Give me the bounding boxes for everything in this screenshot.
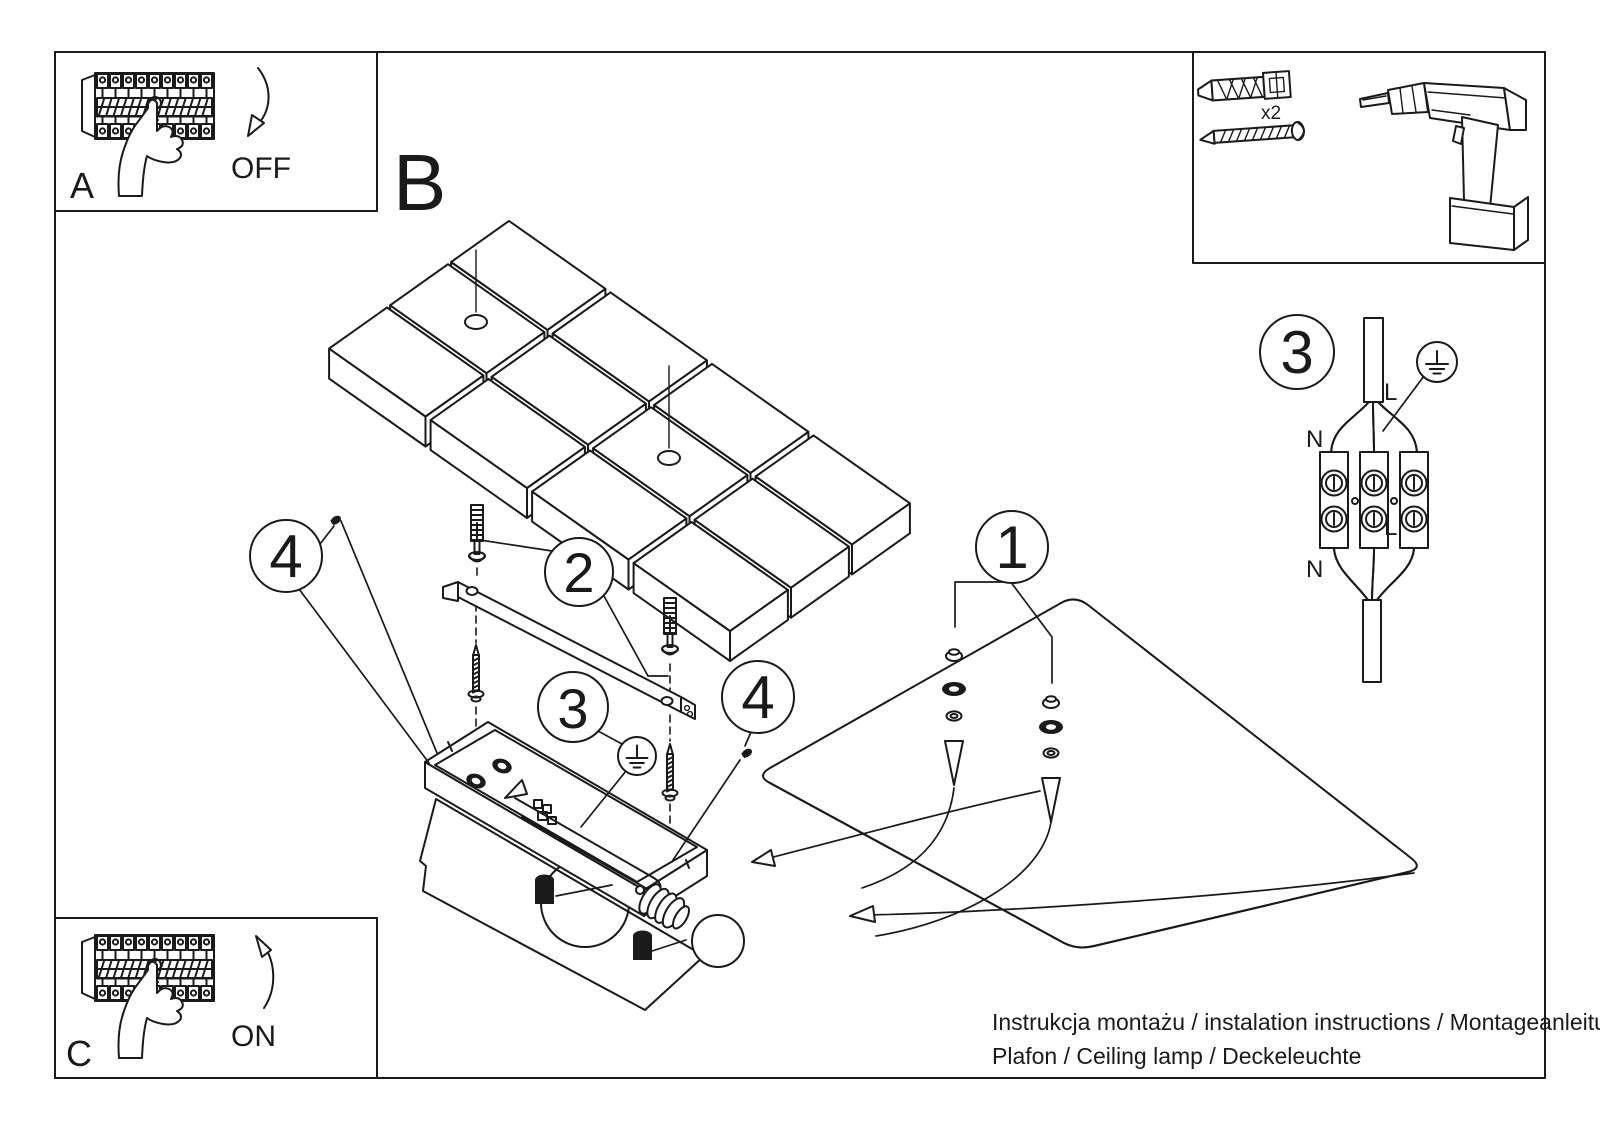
panel-to-lamp-arrow-2 — [868, 873, 1414, 915]
footer-line1: Instrukcja montażu / instalation instruc… — [992, 1009, 1600, 1035]
ground-symbol — [618, 737, 656, 775]
step-1-label: 1 — [995, 514, 1028, 581]
label-on: ON — [231, 1020, 276, 1053]
guide-arrows — [752, 788, 1414, 936]
label-neutral-bottom: N — [1306, 556, 1323, 583]
wiring-diagram: 3 N N L L — [1260, 315, 1457, 682]
assembly-diagram: 1 2 3 4 4 3 N N L L A OFF — [0, 0, 1600, 1131]
supply-cable-top — [1364, 318, 1383, 402]
footer-line2: Plafon / Ceiling lamp / Deckeleuchte — [992, 1043, 1361, 1069]
instruction-sheet: 1 2 3 4 4 3 N N L L A OFF — [0, 0, 1600, 1131]
inset-box-c — [55, 918, 377, 1078]
label-anchor-qty: x2 — [1261, 103, 1281, 124]
label-b: B — [393, 138, 446, 227]
panel-to-lamp-arrow-1 — [766, 791, 1040, 859]
step-2-label: 2 — [563, 541, 594, 604]
label-live-top: L — [1384, 379, 1397, 406]
supply-cable-bottom — [1363, 600, 1381, 682]
label-off: OFF — [231, 152, 291, 185]
fastener-stacks — [942, 649, 1063, 822]
light-bulb — [692, 915, 744, 967]
label-c: C — [66, 1033, 92, 1074]
step-4-right-label: 4 — [741, 664, 774, 731]
step-3-wiring-label: 3 — [1280, 319, 1313, 386]
ground-symbol-wiring — [1417, 342, 1457, 382]
ceiling-tiles — [329, 221, 910, 661]
diffuser-panel — [763, 599, 1417, 947]
label-neutral-top: N — [1306, 426, 1323, 453]
label-live-bottom: L — [1384, 514, 1397, 541]
terminal-block — [1320, 452, 1428, 548]
lamp-base-tray — [425, 722, 707, 916]
step-4-left-label: 4 — [269, 523, 302, 590]
label-a: A — [70, 165, 94, 206]
step-3-label: 3 — [557, 677, 588, 740]
inset-box-a — [55, 52, 377, 211]
